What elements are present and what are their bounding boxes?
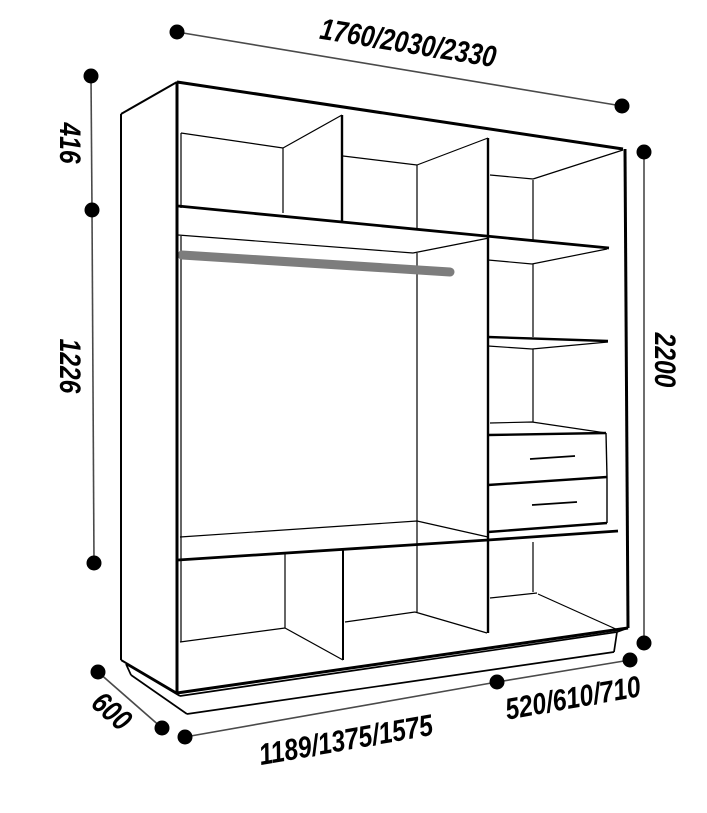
drawer-divider-edge [488, 477, 607, 485]
front-right-edge [625, 149, 628, 628]
drawers [488, 433, 607, 532]
dim-label-hanging-height: 1226 [52, 339, 86, 394]
top-front-edge [177, 82, 623, 149]
wardrobe-dimension-diagram: 1760/2030/2330 416 1226 2200 600 1189/13… [0, 0, 707, 813]
dim-line-top-section-height [91, 76, 92, 210]
interior-back-edges [181, 133, 623, 642]
drawer-1-handle [530, 456, 575, 459]
bottom-compartments [180, 549, 618, 660]
right-column-shelves [488, 337, 608, 435]
left-side-panel [121, 82, 177, 693]
dimension-lines [91, 32, 644, 737]
drawer-2-bottom-edge [488, 523, 607, 532]
top-divider-panels [283, 115, 488, 222]
drawer-1-right-edge [606, 433, 607, 477]
dim-label-total-height: 2200 [647, 333, 681, 388]
dim-line-hanging-height [92, 210, 94, 563]
drawer-2-handle [532, 502, 577, 505]
hanging-rod [182, 255, 450, 272]
wardrobe-outline [177, 82, 628, 694]
dim-label-top-section-height: 416 [52, 122, 86, 163]
